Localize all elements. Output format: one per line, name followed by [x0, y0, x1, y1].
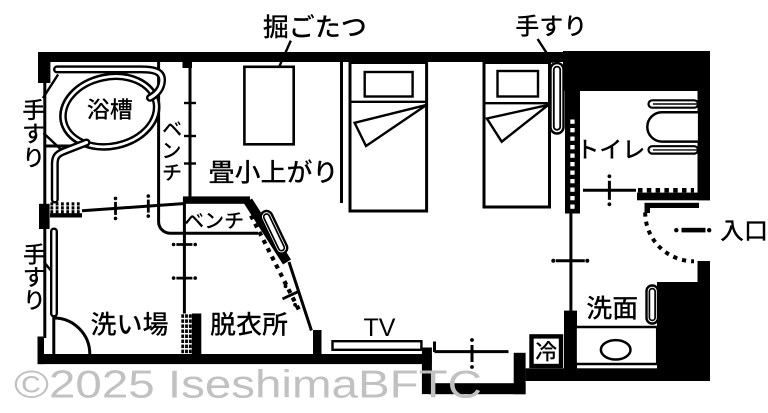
svg-text:TV: TV [364, 314, 396, 342]
svg-text:©2025 IseshimaBFTC: ©2025 IseshimaBFTC [14, 364, 482, 407]
